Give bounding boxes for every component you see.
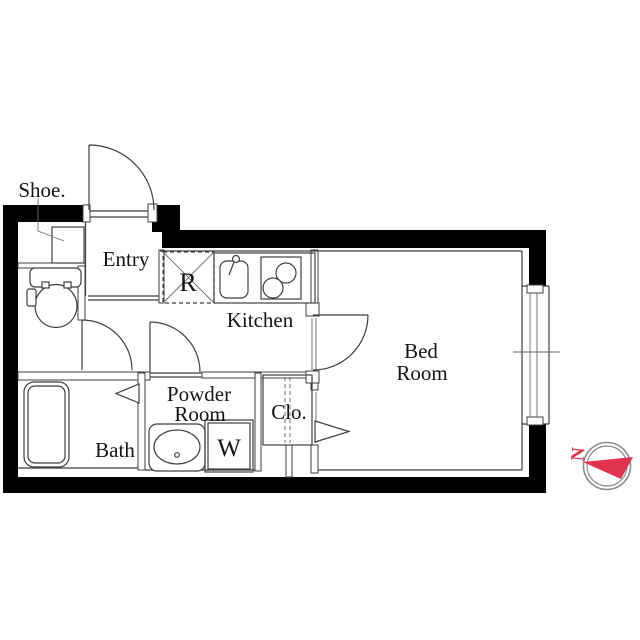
toilet-control-panel <box>27 289 36 306</box>
bathtub-inner <box>28 386 65 463</box>
faucet-icon <box>233 256 240 263</box>
wall-left <box>3 205 18 493</box>
toilet-hinge-right <box>64 282 71 288</box>
sliding-window-icon <box>513 285 560 425</box>
wall-wc-top <box>18 263 85 268</box>
window-sash-stop-top <box>527 285 543 293</box>
wash-basin-icon <box>149 424 205 471</box>
entry-door-sill <box>90 211 148 217</box>
room-label-bedroom-2: Room <box>396 361 447 385</box>
room-label-closet: Clo. <box>271 400 307 424</box>
window-glass-lines <box>530 293 537 417</box>
powder-door-sill <box>150 373 202 377</box>
wall-top-left <box>3 205 85 222</box>
room-label-entry: Entry <box>103 247 150 271</box>
entry-door-jamb-right <box>148 204 157 222</box>
compass-north-label: N <box>567 446 589 462</box>
inner-face-lines <box>18 211 522 470</box>
basin-drain <box>175 453 180 458</box>
bathtub-icon <box>24 382 69 467</box>
kitchen-sink-icon <box>220 261 248 298</box>
floor-plan-canvas: N Shoe. Entry R Kitchen Bed Room Powder … <box>0 0 640 640</box>
wall-bottom <box>3 477 546 493</box>
toilet-bowl <box>35 285 77 328</box>
wall-right-upper <box>529 230 546 286</box>
stove-burner-2 <box>263 278 283 298</box>
window-sash-stop-bottom <box>527 417 543 425</box>
toilet-hinge-left <box>42 282 49 288</box>
shoe-cabinet-outline <box>52 227 84 263</box>
closet-folding-door-icon <box>315 421 349 442</box>
bedroom-door-track <box>312 318 316 370</box>
bath-folding-door-icon <box>116 384 139 403</box>
room-label-refrigerator: R <box>179 268 197 297</box>
wall-right-lower <box>529 424 546 479</box>
compass-north-arrow <box>583 457 633 479</box>
bedroom-door-jamb-top <box>306 303 319 316</box>
entry-door-arc <box>89 145 154 210</box>
toilet-icon <box>27 268 81 328</box>
wc-door-arc <box>82 320 132 370</box>
kitchen-counter <box>214 253 315 303</box>
powder-door-arc <box>150 322 200 372</box>
room-label-washer: W <box>217 435 241 462</box>
room-label-shoe: Shoe. <box>18 178 65 202</box>
floor-plan: N Shoe. Entry R Kitchen Bed Room Powder … <box>0 0 640 640</box>
bedroom-door-arc <box>313 315 368 370</box>
room-label-kitchen: Kitchen <box>227 308 294 332</box>
basin-bowl <box>154 430 200 464</box>
room-label-powder-2: Room <box>174 402 225 426</box>
room-label-bedroom-1: Bed <box>404 339 438 363</box>
entry-step-edge <box>88 296 159 300</box>
wall-powder-closet-divider <box>255 373 261 471</box>
wall-bedroom-west-lower <box>311 445 318 473</box>
room-label-bath: Bath <box>95 438 135 462</box>
wall-bath-top <box>18 372 150 380</box>
wall-top-main <box>162 230 546 248</box>
compass-icon: N <box>567 443 633 490</box>
window-frame <box>522 286 549 424</box>
wall-below-closet <box>286 445 292 477</box>
